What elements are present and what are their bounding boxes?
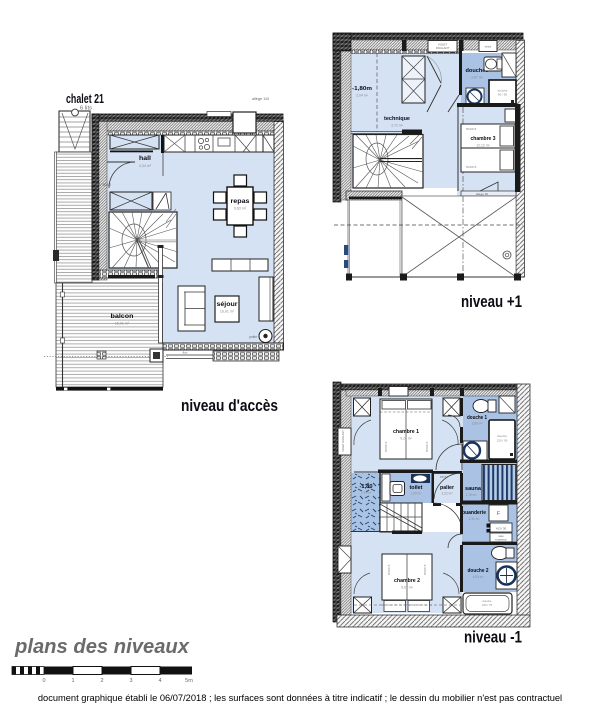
svg-text:4: 4 [158, 678, 161, 684]
svg-text:douche 1: douche 1 [467, 415, 487, 421]
svg-text:12,12 m²: 12,12 m² [476, 144, 490, 148]
svg-text:niveau -1: niveau -1 [464, 629, 522, 647]
svg-text:niveau +1: niveau +1 [461, 293, 522, 311]
svg-text:160 / 75: 160 / 75 [482, 603, 493, 607]
svg-text:85/200 B: 85/200 B [425, 441, 429, 452]
svg-text:sauna: sauna [465, 486, 482, 492]
svg-text:chambre 3: chambre 3 [471, 136, 497, 142]
svg-text:allège 110: allège 110 [252, 97, 269, 101]
svg-text:16,91 m²: 16,91 m² [220, 310, 235, 314]
svg-text:9,67 m²: 9,67 m² [401, 586, 413, 590]
svg-text:plans des niveaux: plans des niveaux [14, 636, 190, 658]
svg-text:2: 2 [100, 678, 103, 684]
svg-text:chambre 2: chambre 2 [394, 578, 420, 584]
svg-text:allège 90: allège 90 [476, 192, 489, 196]
svg-text:repas: repas [231, 198, 250, 205]
svg-text:9,24 m²: 9,24 m² [400, 437, 412, 441]
svg-text:ACV 30: ACV 30 [496, 527, 507, 531]
svg-text:9,63 m²: 9,63 m² [234, 207, 247, 211]
svg-text:85/200 B: 85/200 B [466, 127, 477, 131]
svg-text:2,04 m²: 2,04 m² [356, 94, 368, 98]
svg-text:2,87 m²: 2,87 m² [471, 76, 483, 80]
svg-text:VOLET ROULANT: VOLET ROULANT [341, 430, 345, 452]
svg-text:2,22 m²: 2,22 m² [442, 492, 453, 496]
svg-text:85/200 B: 85/200 B [384, 441, 388, 452]
svg-text:90 / 90: 90 / 90 [498, 93, 508, 97]
svg-text:buanderie: buanderie [462, 510, 486, 516]
svg-text:expansion: expansion [495, 538, 507, 542]
svg-text:PV 90/90: PV 90/90 [97, 183, 111, 187]
svg-text:1,50 m²: 1,50 m² [411, 492, 422, 496]
svg-text:poêle: poêle [249, 335, 257, 339]
svg-text:chalet 21: chalet 21 [66, 91, 104, 106]
svg-text:velux: velux [485, 45, 492, 49]
svg-text:technique: technique [384, 116, 411, 122]
svg-text:ROULANT: ROULANT [436, 46, 450, 50]
svg-text:palier: palier [440, 485, 454, 491]
svg-text:85/200 B: 85/200 B [466, 165, 477, 169]
svg-text:85/200 B: 85/200 B [387, 564, 391, 575]
svg-text:15,01 m²: 15,01 m² [115, 322, 130, 326]
svg-text:-1,80m: -1,80m [352, 86, 372, 92]
svg-text:0: 0 [42, 678, 45, 684]
svg-text:3: 3 [129, 678, 132, 684]
svg-text:85/200 B: 85/200 B [423, 564, 427, 575]
svg-text:toilet: toilet [410, 485, 423, 491]
svg-text:2,71 m²: 2,71 m² [391, 124, 403, 128]
svg-text:chambre 1: chambre 1 [393, 429, 420, 435]
svg-text:5m: 5m [185, 678, 193, 684]
svg-text:document graphique établi le 0: document graphique établi le 06/07/2018 … [38, 693, 562, 703]
svg-text:4,59 m²: 4,59 m² [473, 575, 484, 579]
svg-text:4,34 m²: 4,34 m² [139, 164, 152, 168]
svg-text:balcon: balcon [111, 313, 134, 320]
svg-text:PP 82: PP 82 [440, 475, 448, 479]
svg-text:niveau d'accès: niveau d'accès [181, 397, 278, 415]
svg-text:hall: hall [139, 155, 151, 162]
svg-text:2,31 m²: 2,31 m² [469, 517, 480, 521]
svg-text:1: 1 [71, 678, 74, 684]
svg-text:douche 2: douche 2 [468, 568, 489, 574]
svg-text:3,50 m²: 3,50 m² [472, 422, 483, 426]
svg-text:1,34 m²: 1,34 m² [361, 491, 371, 495]
svg-text:flux: flux [183, 351, 188, 355]
svg-text:120 / 90: 120 / 90 [497, 439, 508, 443]
svg-text:séjour: séjour [217, 301, 238, 308]
svg-text:douche: douche [497, 434, 507, 438]
svg-text:1,76 m²: 1,76 m² [466, 493, 477, 497]
svg-text:-1,80: -1,80 [360, 484, 373, 490]
